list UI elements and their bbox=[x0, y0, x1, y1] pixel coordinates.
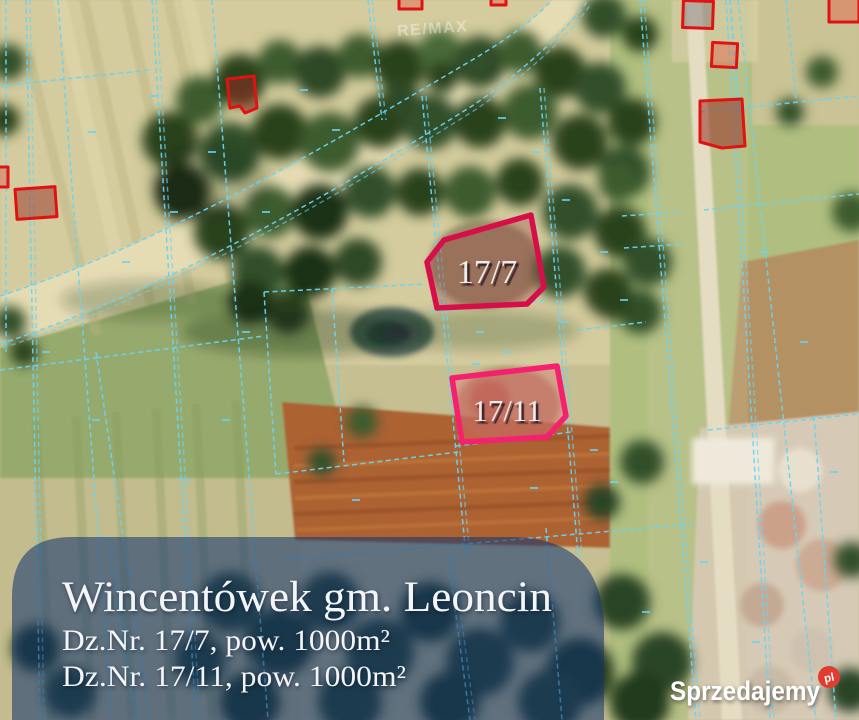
parcel-17-11: 17/11 17/11 bbox=[452, 366, 566, 442]
building-footprint bbox=[711, 42, 737, 67]
building-footprint bbox=[227, 76, 257, 113]
parcel-17-7-label: 17/7 bbox=[457, 254, 517, 291]
plot-1-details: Dz.Nr. 17/7, pow. 1000m² bbox=[62, 625, 390, 657]
building-footprint bbox=[700, 99, 745, 148]
info-panel: Wincentówek gm. Leoncin Dz.Nr. 17/7, pow… bbox=[12, 537, 604, 720]
listing-title: Wincentówek gm. Leoncin bbox=[62, 574, 552, 621]
listing-image: RE/MAX 17/7 17/7 17/11 17/11 Wincentówek… bbox=[0, 0, 859, 720]
building-footprint bbox=[829, 0, 859, 22]
sprzedajemy-wordmark: Sprzedajemy bbox=[670, 676, 820, 706]
building-footprint bbox=[0, 167, 8, 187]
building-footprint bbox=[15, 187, 57, 220]
satellite-map: RE/MAX 17/7 17/7 17/11 17/11 Wincentówek… bbox=[0, 0, 859, 720]
building-footprint bbox=[399, 0, 422, 9]
building-footprint bbox=[683, 0, 714, 28]
building-footprint bbox=[491, 0, 506, 5]
parcel-17-11-label: 17/11 bbox=[472, 393, 541, 428]
plot-2-details: Dz.Nr. 17/11, pow. 1000m² bbox=[62, 661, 406, 693]
